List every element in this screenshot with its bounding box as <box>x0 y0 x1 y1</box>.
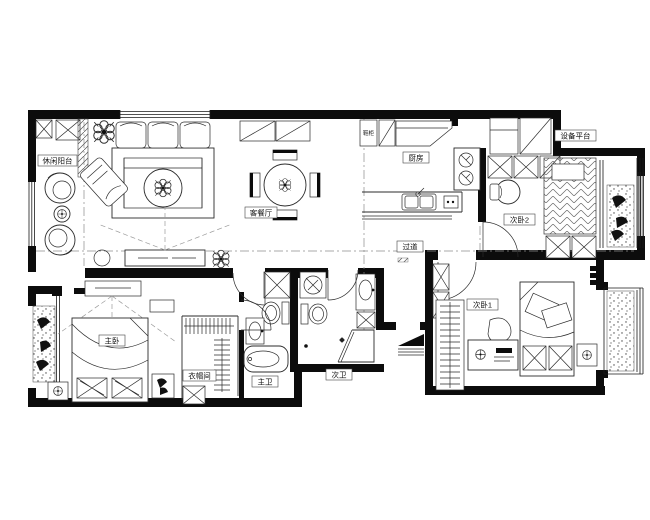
room-label-master-bedroom: 主卧 <box>105 336 120 346</box>
round-chair-icon <box>45 225 75 255</box>
room-label-corridor: 过道 <box>403 242 418 252</box>
bathtub-icon <box>244 346 288 372</box>
nightstand <box>577 344 597 366</box>
desk-chair <box>490 180 520 204</box>
hanger-rail <box>214 338 230 392</box>
master-bedroom <box>33 273 265 402</box>
stove-icon <box>454 148 480 190</box>
sideboard <box>240 121 310 141</box>
washing-machine-icon <box>300 272 326 298</box>
room-label-bedroom2: 次卧2 <box>510 215 529 225</box>
floor-plan: 鞋柜 <box>0 0 650 520</box>
cabinet-xbox <box>183 386 205 404</box>
nightstand <box>152 374 174 398</box>
round-chair-icon <box>45 173 75 203</box>
sink-icon <box>246 318 264 344</box>
plant-icon <box>213 250 229 268</box>
plant-icon <box>94 121 114 143</box>
room-label-bedroom1: 次卧1 <box>473 300 492 310</box>
fridge <box>490 118 551 154</box>
sink-cabinet <box>357 312 375 328</box>
bedroom1 <box>433 262 597 390</box>
bed <box>72 318 148 402</box>
room-label-leisure-balcony: 休闲阳台 <box>43 156 73 166</box>
room-label-master-bath: 主卫 <box>258 377 273 387</box>
nightstand <box>48 382 68 400</box>
tv-cabinet <box>94 250 205 266</box>
shower-icon <box>338 330 374 362</box>
kitchen-counter <box>396 121 452 146</box>
balcony-planter <box>33 306 55 382</box>
hanger-rail <box>184 318 234 334</box>
tv-cabinet <box>85 281 141 296</box>
kitchen-sink-counter <box>362 188 462 212</box>
side-table-icon <box>54 206 70 222</box>
balcony <box>600 158 643 248</box>
plant-icon <box>279 179 291 192</box>
shoe-cabinet-label: 鞋柜 <box>363 129 375 137</box>
desk-chair <box>468 318 518 370</box>
wardrobe <box>436 300 464 390</box>
washing-machine-icon <box>264 272 290 298</box>
room-label-second-bath: 次卫 <box>332 370 347 380</box>
bed <box>520 282 574 376</box>
living-dining <box>79 121 320 268</box>
sofa <box>112 122 214 218</box>
room-label-kitchen: 厨房 <box>409 153 424 163</box>
second-bath <box>300 270 375 362</box>
sink-icon <box>356 274 375 310</box>
room-label-living-dining: 客餐厅 <box>250 208 273 218</box>
master-bath <box>241 272 290 372</box>
room-label-equipment-platform: 设备平台 <box>561 131 591 141</box>
entry-arrow-icon <box>398 334 424 355</box>
corridor <box>398 258 424 355</box>
room-label-cloakroom: 衣帽间 <box>188 371 211 381</box>
tatami-bed <box>544 158 596 234</box>
bedroom2 <box>483 156 643 258</box>
shoe-cabinet: 鞋柜 <box>360 120 395 146</box>
toilet-icon <box>301 304 327 324</box>
cloakroom <box>182 316 238 404</box>
